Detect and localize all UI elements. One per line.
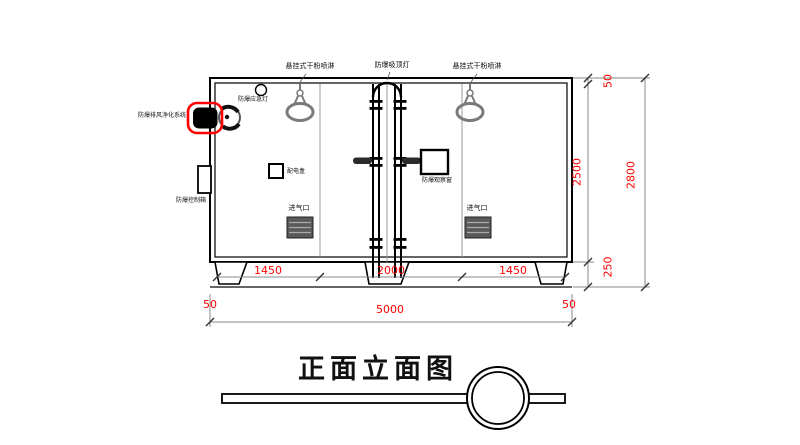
dim-total-height: 2800 [626, 161, 637, 189]
dim-bay-right: 1450 [499, 265, 527, 276]
drawing-title: 正面立面图 [298, 356, 458, 383]
observation-window-label: 防爆观察窗 [422, 178, 452, 184]
dim-offset-top-right: 50 [603, 74, 614, 88]
power-box-icon [269, 164, 283, 178]
air-inlet-left-label: 进气口 [289, 205, 310, 212]
dim-bay-left: 1450 [254, 265, 282, 276]
air-inlet-grille-left [287, 217, 313, 238]
dim-base-height: 250 [603, 257, 614, 278]
power-box-label: 配电盒 [287, 169, 305, 175]
elevation-drawing: 悬挂式干粉喷淋 防爆吸顶灯 悬挂式干粉喷淋 防爆应急灯 防爆排风净化系统 防爆控… [0, 0, 800, 445]
sprinkler-right-label: 悬挂式干粉喷淋 [453, 63, 502, 70]
container-outline [210, 78, 572, 262]
dim-bay-center: 2000 [377, 265, 405, 276]
control-box-label: 防爆控制箱 [176, 198, 206, 204]
dim-offset-bottom-right: 50 [562, 299, 576, 310]
observation-window-icon [421, 150, 448, 174]
control-box-icon [198, 166, 211, 193]
dim-interior-height: 2500 [572, 158, 583, 186]
air-inlet-grille-right [465, 217, 491, 238]
sprinkler-left-label: 悬挂式干粉喷淋 [286, 63, 335, 70]
air-inlet-right-label: 进气口 [467, 205, 488, 212]
emergency-lamp-icon [256, 85, 267, 96]
dim-offset-bottom-left: 50 [203, 299, 217, 310]
exhaust-purification-label: 防爆排风净化系统 [138, 113, 186, 119]
dim-total-width: 5000 [376, 304, 404, 315]
ceiling-lamp-label: 防爆吸顶灯 [375, 62, 410, 69]
emergency-lamp-label: 防爆应急灯 [238, 97, 268, 103]
